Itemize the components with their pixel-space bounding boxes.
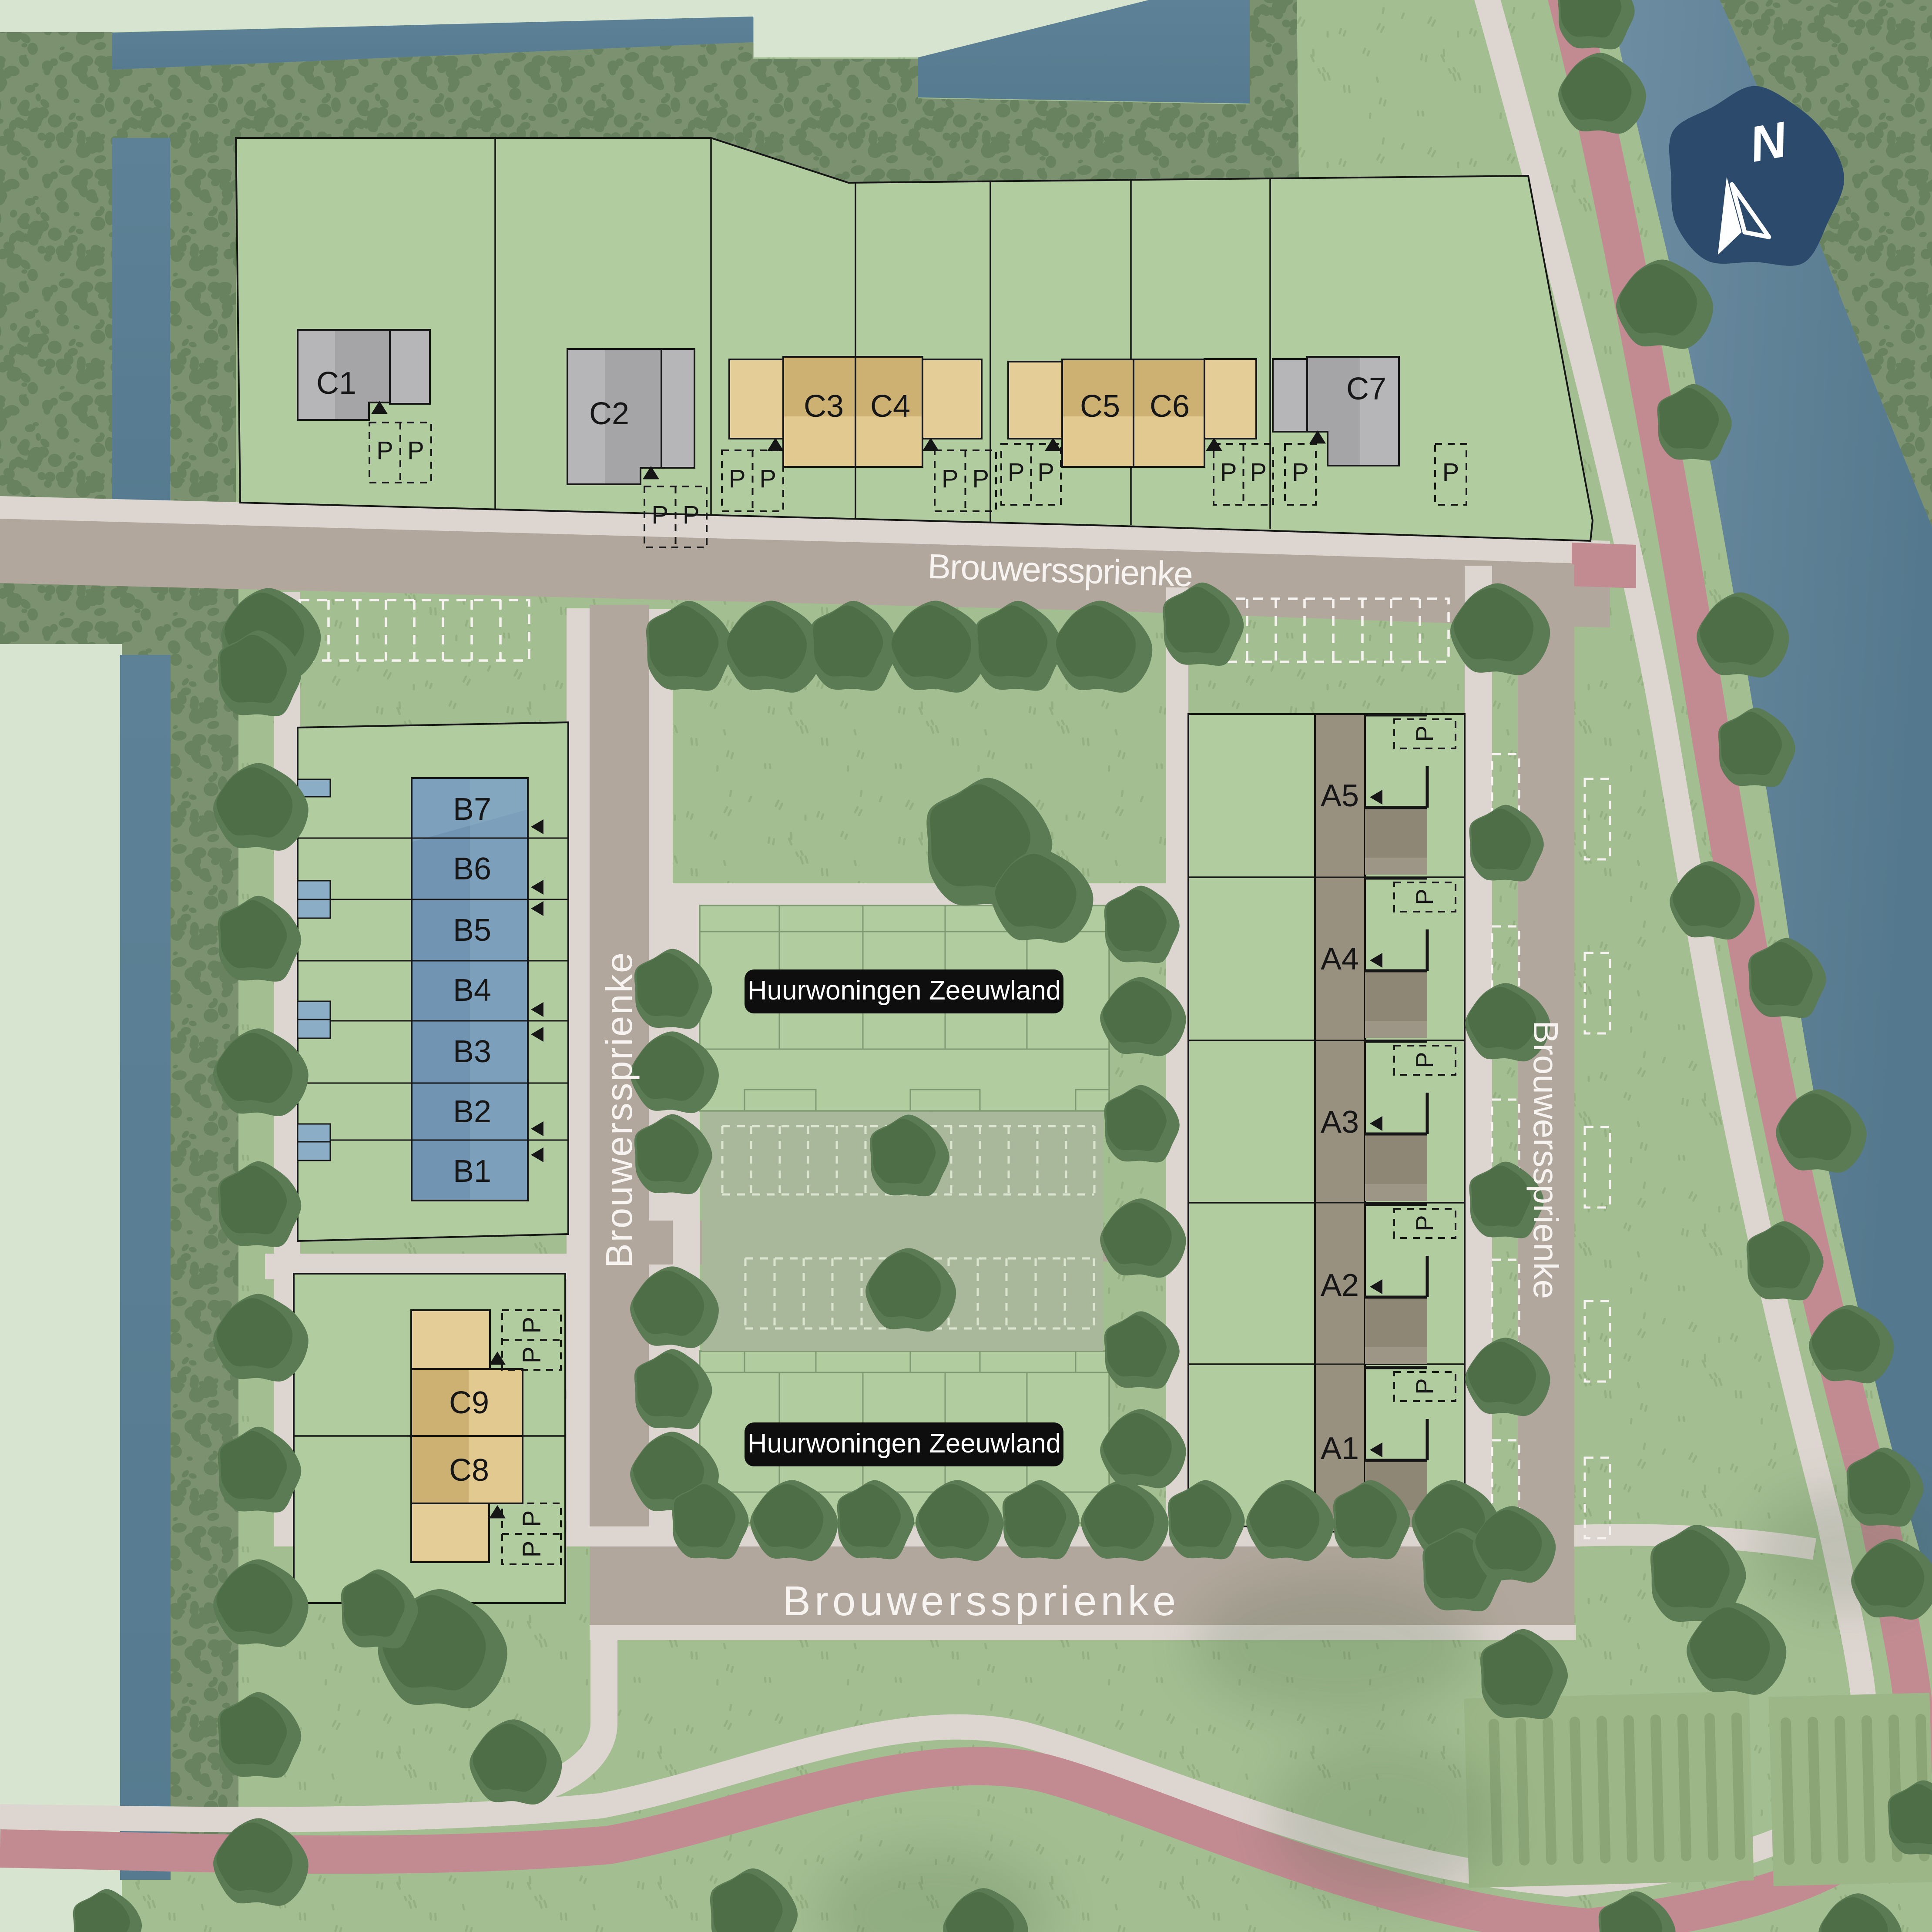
svg-text:P: P xyxy=(1037,458,1054,486)
svg-text:P: P xyxy=(1008,458,1025,486)
svg-text:Brouwerssprienke: Brouwerssprienke xyxy=(783,1578,1180,1624)
svg-text:P: P xyxy=(942,465,959,493)
svg-text:B5: B5 xyxy=(453,913,491,948)
svg-text:Huurwoningen Zeeuwland: Huurwoningen Zeeuwland xyxy=(748,976,1061,1006)
svg-text:C9: C9 xyxy=(449,1385,489,1420)
svg-text:A4: A4 xyxy=(1321,942,1359,976)
svg-text:P: P xyxy=(1220,458,1237,486)
svg-text:A5: A5 xyxy=(1321,778,1359,813)
svg-text:A3: A3 xyxy=(1321,1105,1359,1140)
svg-text:P: P xyxy=(1411,725,1438,741)
svg-text:P: P xyxy=(729,465,746,493)
svg-text:C3: C3 xyxy=(804,389,844,424)
svg-text:A1: A1 xyxy=(1321,1431,1359,1466)
svg-text:B1: B1 xyxy=(453,1154,491,1189)
svg-text:P: P xyxy=(407,436,424,465)
svg-text:C5: C5 xyxy=(1080,389,1120,424)
svg-text:P: P xyxy=(1411,1215,1438,1231)
svg-text:P: P xyxy=(1411,1052,1438,1068)
svg-text:P: P xyxy=(651,501,668,529)
svg-text:P: P xyxy=(683,501,700,529)
svg-text:P: P xyxy=(1442,458,1459,486)
svg-text:B7: B7 xyxy=(453,792,491,827)
svg-text:Brouwerssprienke: Brouwerssprienke xyxy=(599,951,640,1268)
svg-text:P: P xyxy=(518,1510,546,1527)
svg-text:P: P xyxy=(1411,1378,1438,1394)
svg-text:P: P xyxy=(1250,458,1267,486)
svg-text:C2: C2 xyxy=(589,396,629,431)
svg-text:C7: C7 xyxy=(1346,372,1386,406)
svg-text:P: P xyxy=(1292,458,1309,486)
svg-text:C1: C1 xyxy=(316,366,356,401)
svg-text:C6: C6 xyxy=(1150,389,1190,424)
svg-text:P: P xyxy=(518,1317,546,1334)
svg-text:B6: B6 xyxy=(453,852,491,886)
svg-text:B2: B2 xyxy=(453,1094,491,1129)
svg-text:P: P xyxy=(1411,889,1438,905)
svg-text:P: P xyxy=(972,465,989,493)
svg-text:C8: C8 xyxy=(449,1453,489,1488)
svg-text:P: P xyxy=(759,465,776,493)
svg-text:A2: A2 xyxy=(1321,1268,1359,1303)
svg-text:P: P xyxy=(518,1541,546,1558)
svg-text:P: P xyxy=(518,1346,546,1363)
svg-text:B4: B4 xyxy=(453,973,491,1008)
svg-text:Huurwoningen Zeeuwland: Huurwoningen Zeeuwland xyxy=(748,1429,1061,1459)
svg-text:Brouwerssprienke: Brouwerssprienke xyxy=(1526,1020,1565,1299)
svg-text:B3: B3 xyxy=(453,1034,491,1069)
svg-text:P: P xyxy=(376,436,393,465)
svg-text:C4: C4 xyxy=(870,389,910,424)
